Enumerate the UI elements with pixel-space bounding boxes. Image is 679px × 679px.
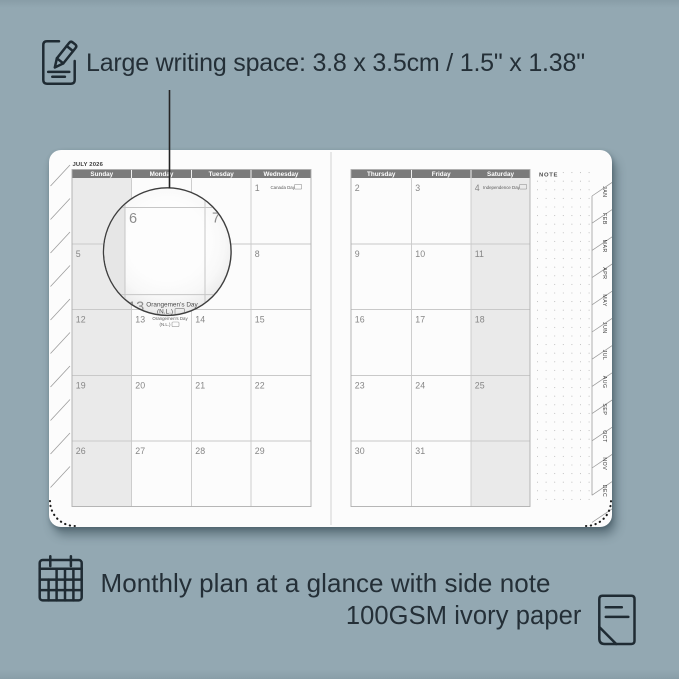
svg-text:23: 23 bbox=[355, 381, 365, 391]
svg-text:6: 6 bbox=[129, 211, 137, 227]
svg-text:(N.L.): (N.L.) bbox=[160, 322, 172, 327]
svg-text:1: 1 bbox=[255, 183, 260, 193]
svg-text:Thursday: Thursday bbox=[367, 171, 396, 178]
svg-text:22: 22 bbox=[255, 381, 265, 391]
svg-text:AUG: AUG bbox=[601, 376, 607, 389]
svg-text:2: 2 bbox=[355, 183, 360, 193]
svg-text:27: 27 bbox=[135, 446, 145, 456]
svg-text:MAR: MAR bbox=[601, 240, 607, 253]
svg-text:17: 17 bbox=[415, 315, 425, 325]
svg-text:24: 24 bbox=[415, 381, 425, 391]
svg-text:Orangemen’s Day: Orangemen’s Day bbox=[146, 301, 198, 308]
svg-text:APR: APR bbox=[601, 267, 607, 279]
svg-text:NOTE: NOTE bbox=[539, 173, 558, 179]
svg-text:26: 26 bbox=[76, 446, 86, 456]
svg-text:SEP: SEP bbox=[601, 403, 607, 415]
svg-text:JUN: JUN bbox=[601, 322, 607, 334]
svg-text:5: 5 bbox=[76, 249, 81, 259]
svg-text:18: 18 bbox=[475, 315, 485, 325]
svg-text:10: 10 bbox=[415, 249, 425, 259]
svg-text:28: 28 bbox=[195, 446, 205, 456]
svg-text:JAN: JAN bbox=[601, 186, 607, 197]
svg-text:3: 3 bbox=[415, 183, 420, 193]
svg-text:4: 4 bbox=[475, 183, 480, 193]
svg-text:9: 9 bbox=[355, 249, 360, 259]
svg-text:8: 8 bbox=[255, 249, 260, 259]
svg-text:OCT: OCT bbox=[601, 430, 607, 443]
svg-text:13: 13 bbox=[135, 315, 145, 325]
svg-text:Friday: Friday bbox=[432, 171, 451, 178]
svg-text:DEC: DEC bbox=[601, 485, 607, 498]
svg-text:Orangemen’s Day: Orangemen’s Day bbox=[152, 316, 188, 321]
svg-text:20: 20 bbox=[135, 381, 145, 391]
svg-text:Tuesday: Tuesday bbox=[209, 171, 235, 178]
svg-text:NOV: NOV bbox=[601, 457, 607, 470]
svg-text:Sunday: Sunday bbox=[90, 171, 113, 178]
svg-text:15: 15 bbox=[255, 315, 265, 325]
svg-text:16: 16 bbox=[355, 315, 365, 325]
svg-text:FEB: FEB bbox=[601, 213, 607, 225]
svg-text:Independence Day: Independence Day bbox=[483, 185, 521, 190]
svg-text:JULY 2026: JULY 2026 bbox=[73, 162, 104, 168]
svg-text:14: 14 bbox=[195, 315, 205, 325]
svg-text:21: 21 bbox=[195, 381, 205, 391]
svg-text:MAY: MAY bbox=[601, 294, 607, 307]
svg-text:Wednesday: Wednesday bbox=[264, 171, 299, 178]
svg-text:31: 31 bbox=[415, 446, 425, 456]
svg-text:Saturday: Saturday bbox=[487, 171, 514, 178]
svg-text:30: 30 bbox=[355, 446, 365, 456]
svg-text:25: 25 bbox=[475, 381, 485, 391]
svg-text:Canada Day: Canada Day bbox=[271, 185, 296, 190]
svg-text:29: 29 bbox=[255, 446, 265, 456]
svg-text:19: 19 bbox=[76, 381, 86, 391]
svg-text:JUL: JUL bbox=[601, 350, 607, 361]
svg-text:11: 11 bbox=[475, 249, 484, 259]
svg-text:12: 12 bbox=[76, 315, 86, 325]
